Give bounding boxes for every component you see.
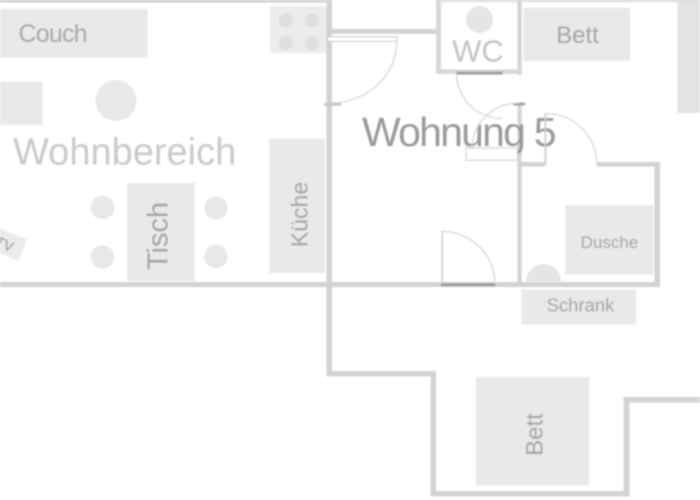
svg-text:Wohnbereich: Wohnbereich: [13, 132, 236, 174]
svg-text:Couch: Couch: [19, 20, 87, 48]
svg-text:Schrank: Schrank: [547, 295, 616, 316]
svg-text:Bett: Bett: [522, 413, 549, 456]
svg-text:Küche: Küche: [287, 182, 313, 247]
svg-text:Bett: Bett: [556, 22, 599, 49]
svg-text:WC: WC: [452, 34, 504, 69]
svg-text:Tisch: Tisch: [143, 202, 175, 270]
svg-text:Dusche: Dusche: [581, 233, 639, 252]
svg-text:Wohnung 5: Wohnung 5: [362, 109, 556, 155]
